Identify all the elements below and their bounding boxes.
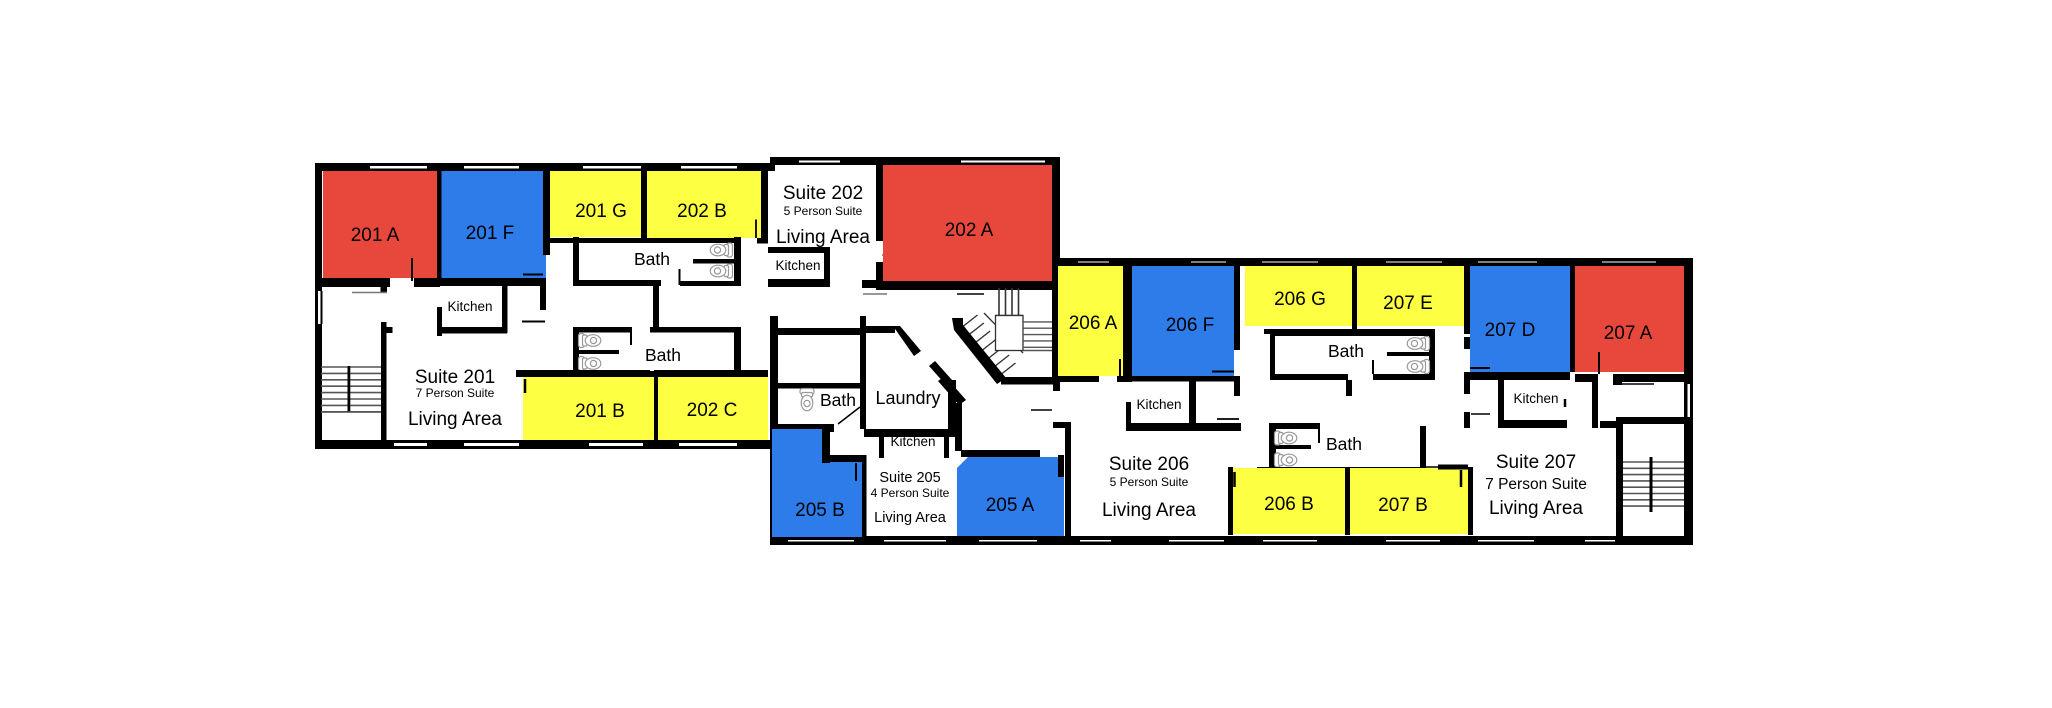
svg-text:Suite 201: Suite 201 [415, 367, 495, 388]
svg-text:202 B: 202 B [677, 201, 727, 222]
svg-text:206 G: 206 G [1274, 289, 1326, 310]
svg-text:201 A: 201 A [351, 225, 400, 246]
svg-text:Living Area: Living Area [874, 510, 947, 526]
svg-text:Living Area: Living Area [776, 227, 870, 248]
svg-text:202 A: 202 A [945, 220, 994, 241]
svg-text:206 F: 206 F [1166, 315, 1215, 336]
svg-text:207 A: 207 A [1604, 323, 1653, 344]
svg-text:5 Person Suite: 5 Person Suite [784, 204, 863, 218]
svg-text:207 D: 207 D [1485, 320, 1536, 341]
svg-text:201 B: 201 B [575, 401, 625, 422]
svg-text:Bath: Bath [820, 390, 856, 410]
svg-text:Living Area: Living Area [1102, 500, 1196, 521]
svg-text:207 E: 207 E [1383, 293, 1433, 314]
svg-text:Living Area: Living Area [408, 409, 502, 430]
svg-text:Suite 207: Suite 207 [1496, 452, 1576, 473]
svg-text:7 Person Suite: 7 Person Suite [416, 386, 495, 400]
svg-text:201 G: 201 G [575, 201, 627, 222]
svg-text:7 Person Suite: 7 Person Suite [1485, 476, 1587, 493]
svg-text:Kitchen: Kitchen [775, 258, 820, 273]
svg-text:Kitchen: Kitchen [1136, 397, 1181, 412]
svg-text:Bath: Bath [1326, 434, 1362, 454]
svg-text:Bath: Bath [1328, 341, 1364, 361]
svg-text:Living Area: Living Area [1489, 498, 1583, 519]
svg-text:202 C: 202 C [687, 400, 738, 421]
svg-text:206 A: 206 A [1069, 313, 1118, 334]
svg-text:201 F: 201 F [466, 223, 515, 244]
svg-text:206 B: 206 B [1264, 494, 1314, 515]
svg-text:4 Person Suite: 4 Person Suite [871, 486, 950, 500]
svg-text:Bath: Bath [645, 345, 681, 365]
svg-text:5 Person Suite: 5 Person Suite [1110, 475, 1189, 489]
svg-text:Laundry: Laundry [875, 388, 940, 408]
svg-text:Kitchen: Kitchen [447, 299, 492, 314]
svg-text:Kitchen: Kitchen [890, 434, 935, 449]
svg-text:Suite 205: Suite 205 [879, 470, 940, 486]
svg-text:205 A: 205 A [986, 495, 1035, 516]
svg-text:Bath: Bath [634, 249, 670, 269]
svg-text:Suite 202: Suite 202 [783, 183, 863, 204]
svg-text:205 B: 205 B [795, 500, 845, 521]
svg-text:Suite 206: Suite 206 [1109, 454, 1189, 475]
svg-text:Kitchen: Kitchen [1513, 391, 1558, 406]
svg-text:207 B: 207 B [1378, 495, 1428, 516]
